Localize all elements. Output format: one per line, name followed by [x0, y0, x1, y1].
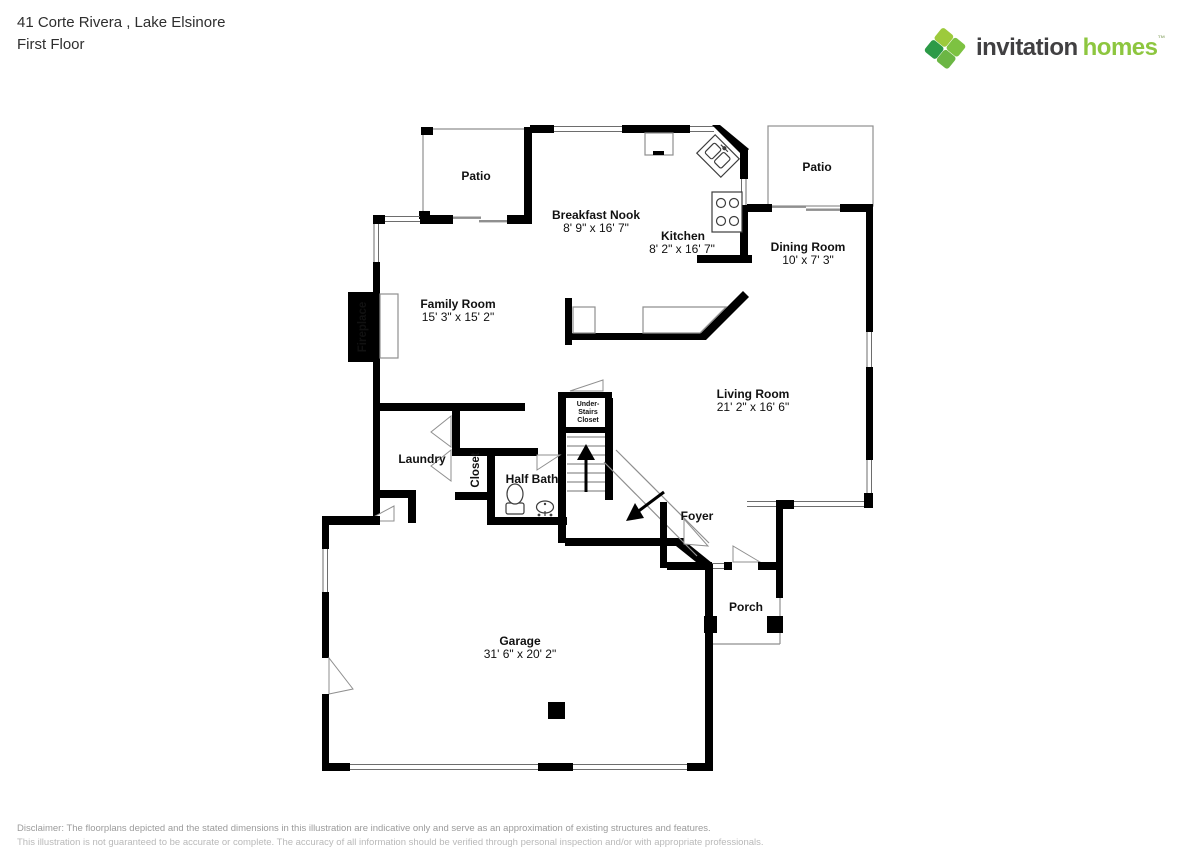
garage-label: Garage — [499, 634, 541, 648]
disclaimer: Disclaimer: The floorplans depicted and … — [17, 822, 1117, 850]
garage-post — [548, 702, 565, 719]
porch-label: Porch — [729, 600, 763, 614]
patio-left-label: Patio — [461, 169, 490, 183]
under-stairs-closet-label-2: Stairs — [578, 409, 598, 416]
fireplace: Fireplace — [348, 292, 398, 362]
kitchen-peninsula-walls — [565, 291, 749, 345]
floorplan-page: 41 Corte Rivera , Lake Elsinore First Fl… — [0, 0, 1193, 844]
laundry-walls — [322, 410, 460, 525]
floorplan-drawing: Fireplace — [0, 0, 1193, 844]
stove-icon — [712, 192, 742, 232]
kitchen-label: Kitchen — [661, 229, 705, 243]
under-stairs-closet-label-1: Under- — [577, 401, 600, 408]
under-stairs-closet-label-3: Closet — [577, 417, 599, 424]
dining-room-dims: 10' x 7' 3" — [782, 253, 834, 267]
fireplace-label: Fireplace — [357, 302, 369, 353]
stairs-up-arrow-icon — [577, 444, 595, 492]
right-exterior-wall — [864, 204, 873, 508]
family-room-dims: 15' 3" x 15' 2" — [422, 310, 494, 324]
breakfast-nook-dims: 8' 9" x 16' 7" — [563, 221, 629, 235]
garage-dims: 31' 6" x 20' 2" — [484, 647, 556, 661]
closet-label: Closet — [470, 452, 482, 487]
kitchen-counter — [645, 133, 673, 155]
disclaimer-line-2: This illustration is not guaranteed to b… — [17, 836, 1117, 850]
dining-room-label: Dining Room — [771, 240, 846, 254]
dining-top-wall — [747, 204, 873, 212]
patio-right-label: Patio — [802, 160, 831, 174]
foyer-label: Foyer — [681, 509, 714, 523]
family-room-label: Family Room — [420, 297, 495, 311]
disclaimer-line-1: Disclaimer: The floorplans depicted and … — [17, 822, 1117, 836]
porch-post — [767, 616, 783, 633]
kitchen-dims: 8' 2" x 16' 7" — [649, 242, 715, 256]
half-bath-label: Half Bath — [506, 472, 559, 486]
bath-sink-icon — [537, 501, 554, 516]
living-room-dims: 21' 2" x 16' 6" — [717, 400, 789, 414]
living-room-label: Living Room — [717, 387, 790, 401]
laundry-label: Laundry — [398, 452, 446, 466]
breakfast-nook-label: Breakfast Nook — [552, 208, 640, 222]
toilet-icon — [506, 484, 524, 514]
